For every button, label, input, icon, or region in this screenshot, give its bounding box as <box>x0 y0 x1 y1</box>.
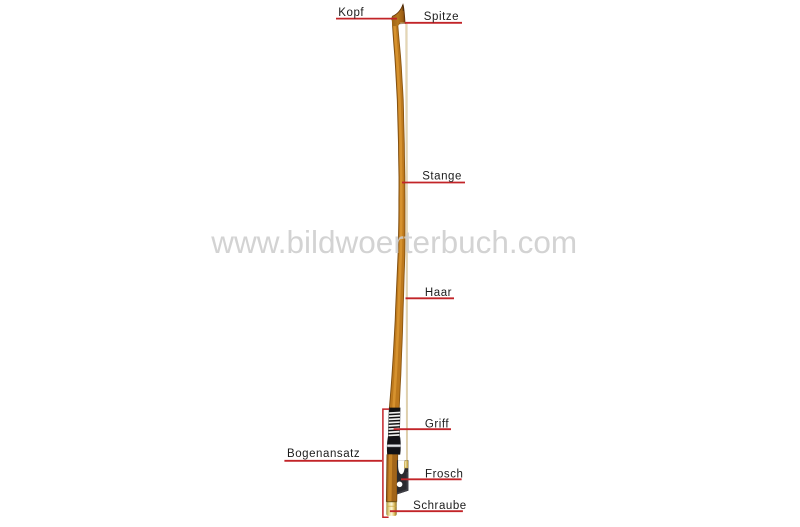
svg-text:Kopf: Kopf <box>338 7 364 19</box>
svg-text:www.bildwoerterbuch.com: www.bildwoerterbuch.com <box>210 224 577 260</box>
svg-text:Schraube: Schraube <box>413 500 467 512</box>
svg-text:Spitze: Spitze <box>424 11 459 23</box>
svg-text:Frosch: Frosch <box>425 468 463 480</box>
svg-text:Stange: Stange <box>422 171 462 183</box>
svg-text:Haar: Haar <box>425 287 452 299</box>
svg-text:Bogenansatz: Bogenansatz <box>287 448 360 460</box>
svg-text:Griff: Griff <box>425 419 450 431</box>
